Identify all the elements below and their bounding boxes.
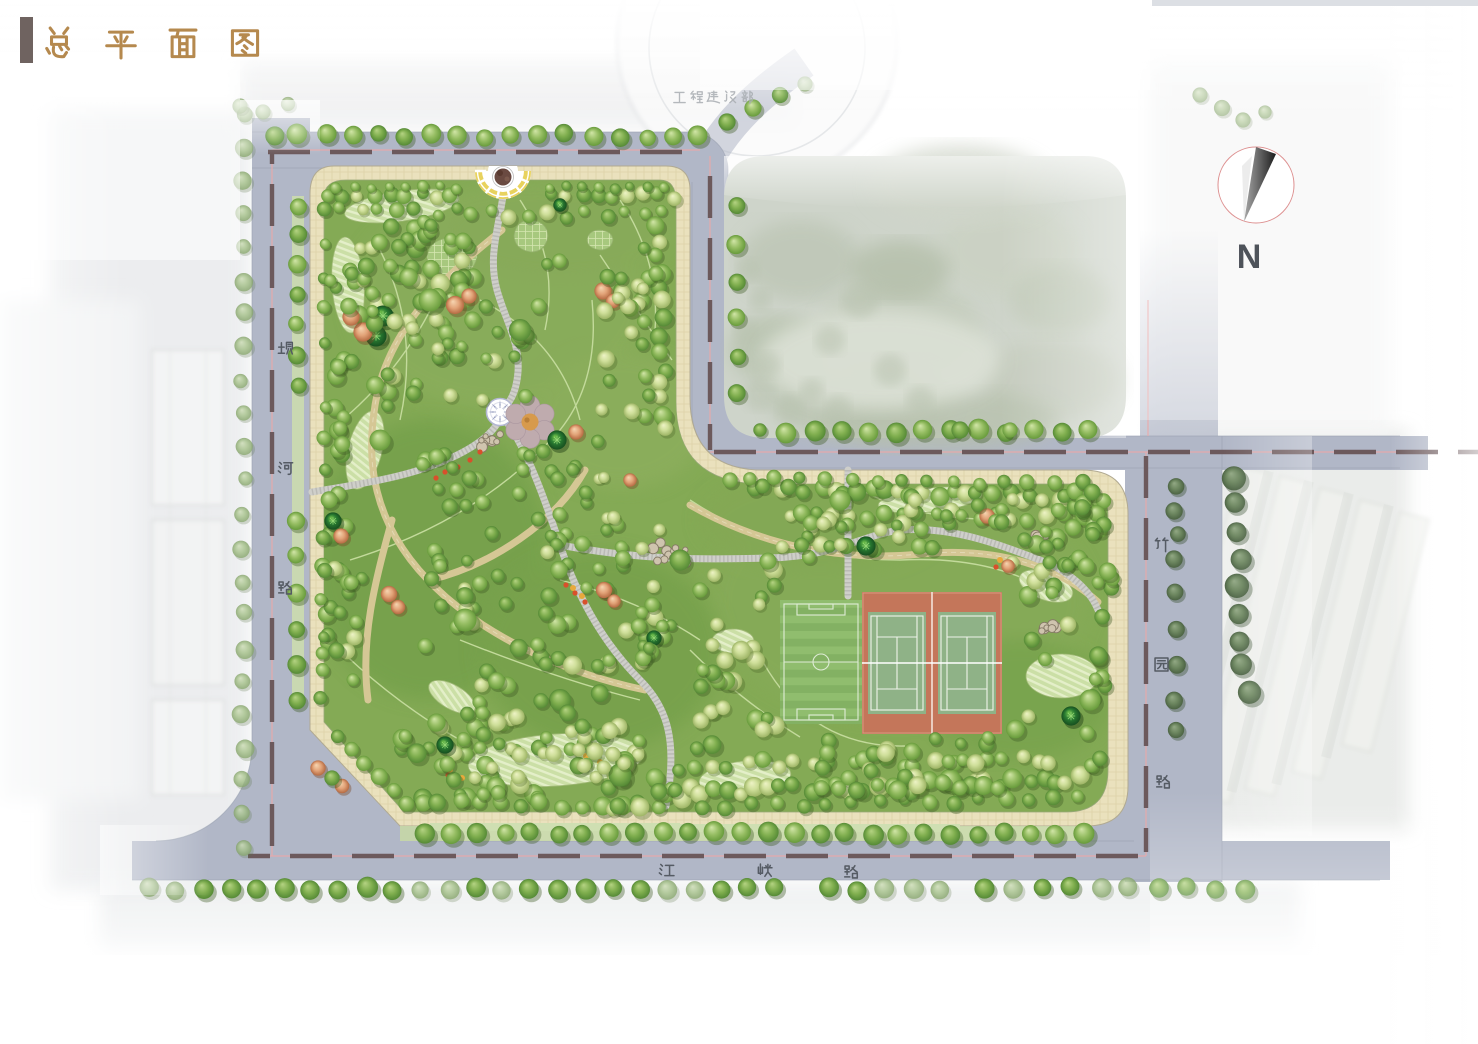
svg-text:N: N [1237,238,1262,276]
